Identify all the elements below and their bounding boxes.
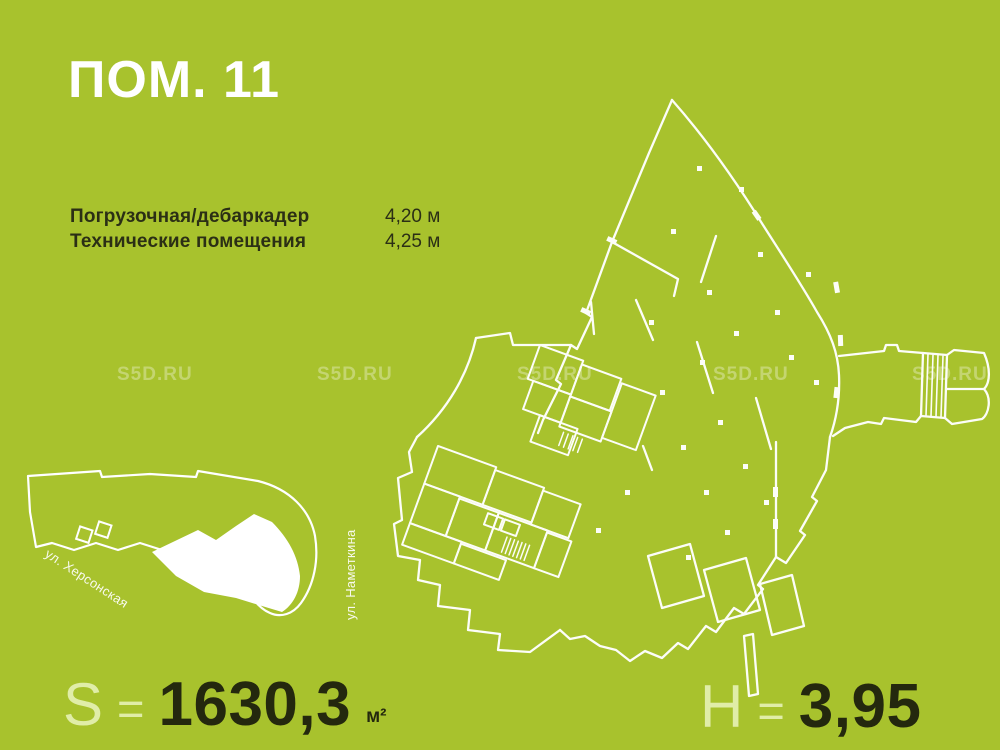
height-equals-sign: = [757, 687, 784, 734]
site-detail-square [95, 521, 111, 537]
fan-right-curve [672, 100, 839, 437]
cluster-arc [417, 338, 476, 437]
arm-right-rooms [945, 350, 989, 424]
cluster-rooms-a [402, 446, 586, 599]
area-value: 1630,3 [158, 674, 351, 736]
site-plan: ул. Херсонская ул. Наметкина [28, 471, 358, 620]
wall-ticks [580, 210, 843, 529]
height-value: 3,95 [799, 676, 922, 738]
street-label-khersonskaya: ул. Херсонская [42, 546, 131, 611]
hall-bottom-zigzag [560, 437, 830, 661]
area-equals-sign: = [117, 685, 144, 732]
listing-card: ПОМ. 11 Погрузочная/дебаркадер 4,20 м Те… [0, 0, 1000, 750]
watermark-text: S5D.RU [517, 364, 593, 386]
cluster-outer-sawtooth [394, 437, 560, 652]
interior-wall-slits [591, 236, 771, 470]
main-floorplan [394, 100, 989, 696]
column-dots [596, 166, 819, 560]
cluster-top-link [476, 333, 571, 345]
area-symbol: S [63, 675, 103, 735]
area-figure: S = 1630,3 м² [63, 674, 387, 736]
arm-top-edge [839, 345, 923, 356]
watermark-text: S5D.RU [912, 364, 988, 386]
area-unit: м² [366, 706, 386, 728]
bottom-room [760, 575, 804, 635]
watermark-text: S5D.RU [117, 364, 193, 386]
site-highlight-fill [152, 514, 300, 612]
watermark-text: S5D.RU [317, 364, 393, 386]
bottom-room [648, 544, 704, 608]
fan-partition [612, 242, 678, 296]
height-symbol: H [700, 677, 743, 737]
height-figure: H = 3,95 [700, 676, 921, 738]
street-label-nametkina: ул. Наметкина [343, 529, 358, 620]
watermark-text: S5D.RU [713, 364, 789, 386]
site-detail-square [76, 526, 92, 542]
arm-bottom-edge [833, 416, 921, 436]
